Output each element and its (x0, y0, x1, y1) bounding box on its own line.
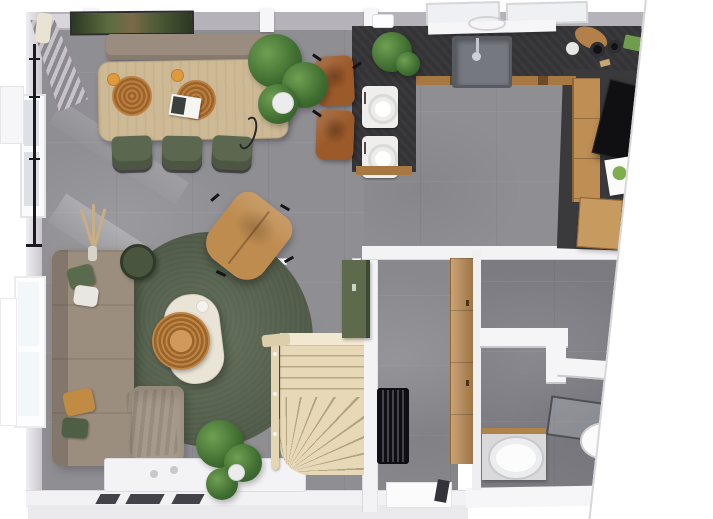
bottom-window-slit (171, 494, 204, 504)
railing-post (273, 432, 277, 436)
wall-pillar (260, 8, 274, 32)
coffee-cup (590, 42, 605, 57)
bowl (196, 300, 209, 313)
plant-pot (272, 92, 294, 114)
green-cabinet (342, 260, 370, 338)
orange-fruit (171, 69, 184, 82)
hall-closet (450, 258, 473, 464)
cushion (61, 417, 89, 439)
window-ledge (0, 86, 24, 144)
window-pane (24, 100, 39, 146)
ceiling-detail (468, 16, 506, 31)
rattan-tray (152, 312, 210, 370)
plate (368, 94, 398, 124)
slat-radiator (377, 388, 409, 464)
railing-post (273, 392, 277, 396)
toilet (488, 436, 544, 480)
bottom-window-slit (125, 494, 164, 504)
floor-lamp-pole (33, 44, 36, 246)
plant-pot (228, 464, 245, 481)
window-pane (18, 282, 39, 346)
dining-chair (162, 136, 203, 171)
magazine (169, 94, 202, 119)
throw-blanket (126, 388, 178, 457)
orange-fruit (107, 73, 120, 86)
decor-object (150, 470, 158, 478)
floor-lamp-arm (29, 96, 40, 98)
floor-lamp-base (26, 244, 42, 247)
side-table (120, 244, 156, 280)
saucer (566, 42, 579, 55)
counter-plant (396, 52, 420, 76)
kitchen-sink (452, 36, 512, 88)
faucet-head (472, 52, 481, 61)
window-pane (24, 152, 39, 206)
cutlery (364, 92, 366, 104)
floor-lamp-arm (29, 58, 40, 60)
peninsula-end-shelf (356, 166, 412, 175)
vase (88, 246, 97, 261)
railing-post (273, 352, 277, 356)
decor-object (170, 466, 178, 474)
closet-handle (466, 300, 469, 306)
kettle (372, 14, 394, 28)
hallway-floor (374, 250, 458, 506)
dining-chair (111, 135, 152, 170)
floor-lamp-arm (29, 158, 40, 160)
curtain (34, 12, 52, 43)
cushion (73, 284, 100, 307)
floorplan-scene (0, 0, 713, 519)
window-ledge (0, 298, 17, 426)
cutlery (364, 142, 366, 154)
window-pane (18, 352, 39, 416)
wall-art (70, 10, 194, 35)
closet-handle (466, 380, 469, 386)
coffee-cup (608, 40, 621, 53)
staircase-winders (280, 397, 364, 475)
bathroom-left-wall (472, 250, 481, 490)
stair-railing (271, 336, 279, 470)
bar-stool (315, 109, 355, 160)
